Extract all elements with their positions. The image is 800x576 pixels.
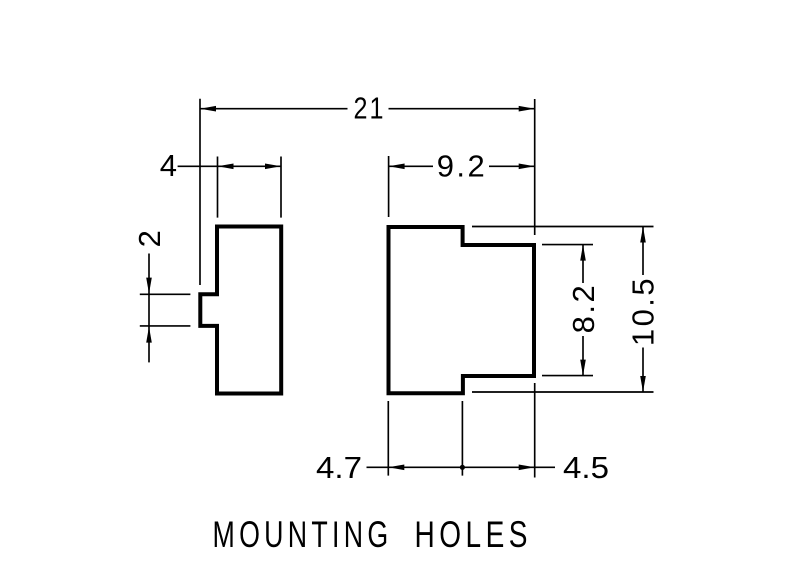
svg-text:2: 2 <box>132 230 167 247</box>
svg-text:4.7: 4.7 <box>316 450 362 485</box>
svg-text:21: 21 <box>354 91 386 126</box>
svg-text:HOLES: HOLES <box>415 513 533 555</box>
svg-text:MOUNTING: MOUNTING <box>213 513 393 555</box>
svg-text:8.2: 8.2 <box>566 283 601 334</box>
svg-text:10.5: 10.5 <box>625 276 660 346</box>
svg-text:4: 4 <box>160 148 177 183</box>
svg-text:9.2: 9.2 <box>437 149 488 184</box>
svg-text:4.5: 4.5 <box>563 450 609 485</box>
